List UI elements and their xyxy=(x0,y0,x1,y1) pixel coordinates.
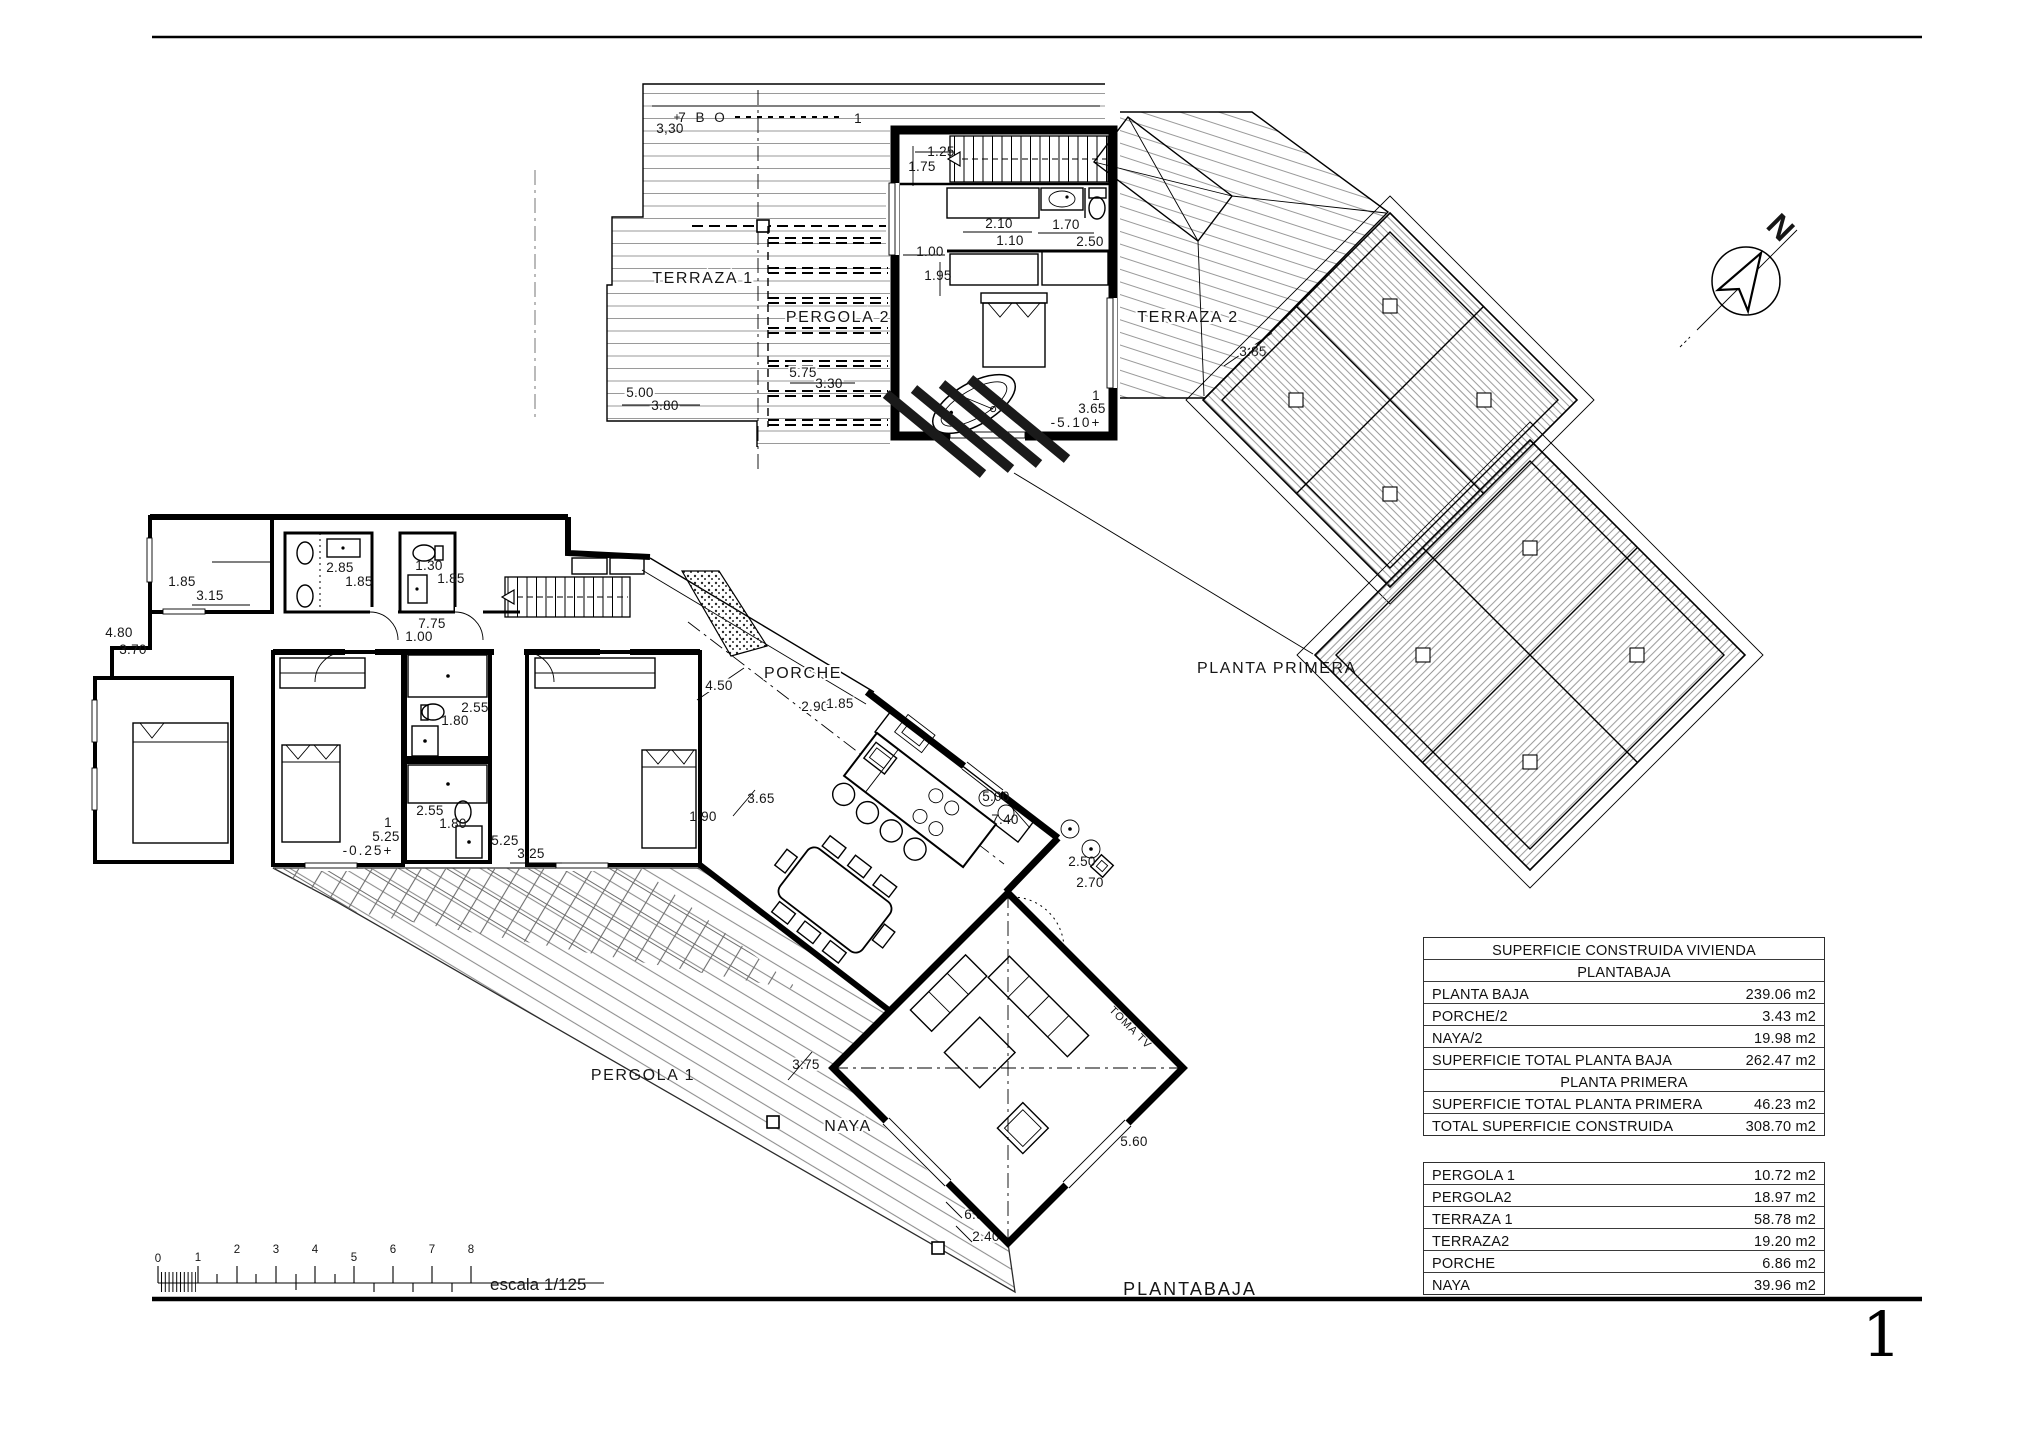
plantabaja-label: PLANTABAJA xyxy=(1123,1279,1257,1299)
scale-tick: 0 xyxy=(155,1253,161,1265)
dim-gf: 5.25 xyxy=(372,829,399,844)
dim-terraza1-b: 3.80 xyxy=(651,398,678,413)
north-arrow: N xyxy=(1680,206,1802,347)
dim-gf: 1.00 xyxy=(405,629,432,644)
scale-tick: 6 xyxy=(390,1244,396,1256)
area-table-construida: SUPERFICIE CONSTRUIDA VIVIENDA PLANTABAJ… xyxy=(1423,937,1825,1136)
gf-bedroom-wing xyxy=(89,517,700,871)
dim-porch: 1.85 xyxy=(826,696,853,711)
table-row: TOTAL SUPERFICIE CONSTRUIDA308.70 m2 xyxy=(1424,1114,1824,1135)
gf-num: 1 xyxy=(384,815,392,830)
dim-pergola2-a: 5.75 xyxy=(789,365,816,380)
table-section: PLANTABAJA xyxy=(1424,960,1824,982)
dim-gf: 1.85 xyxy=(437,571,464,586)
scale-tick: 5 xyxy=(351,1252,357,1264)
table-row: PERGOLA 110.72 m2 xyxy=(1424,1163,1824,1185)
terraza2-label: TERRAZA 2 xyxy=(1137,309,1239,326)
scale-tick: 4 xyxy=(312,1244,319,1256)
table-row: PORCHE6.86 m2 xyxy=(1424,1251,1824,1273)
scale-tick: 2 xyxy=(234,1244,240,1256)
scale-tick: 3 xyxy=(273,1244,279,1256)
table-row: TERRAZA219.20 m2 xyxy=(1424,1229,1824,1251)
dim-terraza1-a: 5.00 xyxy=(626,385,653,400)
planta-primera-label: PLANTA PRIMERA xyxy=(1197,660,1357,677)
dim-hall: 5.00 xyxy=(982,789,1009,804)
table-row: PERGOLA218.97 m2 xyxy=(1424,1185,1824,1207)
scale-label: escala 1/125 xyxy=(490,1275,586,1294)
page-number: 1 xyxy=(1862,1298,1901,1371)
area-table-exteriores: PERGOLA 110.72 m2 PERGOLA218.97 m2 TERRA… xyxy=(1423,1162,1825,1295)
table-section: PLANTA PRIMERA xyxy=(1424,1070,1824,1092)
dim-gf: 4.80 xyxy=(105,625,132,640)
dim-deck-560: 5.60 xyxy=(1120,1134,1147,1149)
naya-label: NAYA xyxy=(824,1118,872,1135)
scale-tick: 7 xyxy=(429,1244,435,1256)
table-row: NAYA/219.98 m2 xyxy=(1424,1026,1824,1048)
dim-ff-365: 3.65 xyxy=(1078,401,1105,416)
dim-gf: 1.85 xyxy=(168,574,195,589)
scale-tick: 1 xyxy=(195,1252,201,1264)
dim-kend: 2.50 xyxy=(1068,854,1095,869)
pergola2-label: PERGOLA 2 xyxy=(786,309,890,326)
dim-ff-100: 1.00 xyxy=(916,244,943,259)
dim-porch: 4.50 xyxy=(705,678,732,693)
plan-sheet: 3,30 + 7 B O 1 TERRAZA 1 PERGOLA 2 5.00 … xyxy=(0,0,2037,1440)
dim-ff-170: 1.70 xyxy=(1052,217,1079,232)
level-ff: -5.10+ xyxy=(1051,415,1102,430)
dim-ff-110: 1.10 xyxy=(996,233,1023,248)
table-row: PLANTA BAJA239.06 m2 xyxy=(1424,982,1824,1004)
table-title: SUPERFICIE CONSTRUIDA VIVIENDA xyxy=(1424,938,1824,960)
roof-connector-line xyxy=(1014,473,1313,654)
gf-dimensions: 1.85 3.15 2.85 1.85 1.30 1.85 7.75 1.00 … xyxy=(105,558,562,863)
table-row: SUPERFICIE TOTAL PLANTA PRIMERA46.23 m2 xyxy=(1424,1092,1824,1114)
dim-ff-210: 2.10 xyxy=(985,216,1012,231)
kitchen-island xyxy=(828,733,996,888)
dim-pergola2-b: 3.30 xyxy=(815,376,842,391)
north-label: N xyxy=(1760,206,1802,248)
porche-label: PORCHE xyxy=(764,665,842,682)
pergola1-label: PERGOLA 1 xyxy=(591,1067,695,1084)
table-row: NAYA39.96 m2 xyxy=(1424,1273,1824,1294)
dim-gf: 3.25 xyxy=(517,846,544,861)
table-row: TERRAZA 158.78 m2 xyxy=(1424,1207,1824,1229)
dim-gf: 3.70 xyxy=(119,642,146,657)
planting-bed xyxy=(682,571,767,656)
ref-top: 7 B O xyxy=(678,110,728,125)
dim-gf: 2.85 xyxy=(326,560,353,575)
dim-gf: 5.25 xyxy=(491,833,518,848)
level-gf: -0.25+ xyxy=(343,843,394,858)
scale-bar: 0 1 2 3 4 5 6 7 8 escala 1/125 xyxy=(155,1244,604,1294)
table-row: SUPERFICIE TOTAL PLANTA BAJA262.47 m2 xyxy=(1424,1048,1824,1070)
table-row: PORCHE/23.43 m2 xyxy=(1424,1004,1824,1026)
dim-gf: 3.15 xyxy=(196,588,223,603)
dim-gf: 1.80 xyxy=(441,713,468,728)
dim-hall: 3.65 xyxy=(747,791,774,806)
terraza1-label: TERRAZA 1 xyxy=(652,270,754,287)
scale-tick: 8 xyxy=(468,1244,474,1256)
dim-hall: 1.90 xyxy=(689,809,716,824)
dim-gf: 1.80 xyxy=(439,816,466,831)
dim-hall: 7.40 xyxy=(991,812,1018,827)
dim-gf: 1.85 xyxy=(345,574,372,589)
dim-ff-195: 1.95 xyxy=(924,268,951,283)
ref-num: 1 xyxy=(854,111,862,126)
dim-ff-250: 2.50 xyxy=(1076,234,1103,249)
dim-porch: 2.90 xyxy=(801,699,828,714)
dim-ff-175: 1.75 xyxy=(908,159,935,174)
dim-kend: 2.70 xyxy=(1076,875,1103,890)
dim-ff-125: 1.25 xyxy=(927,144,954,159)
